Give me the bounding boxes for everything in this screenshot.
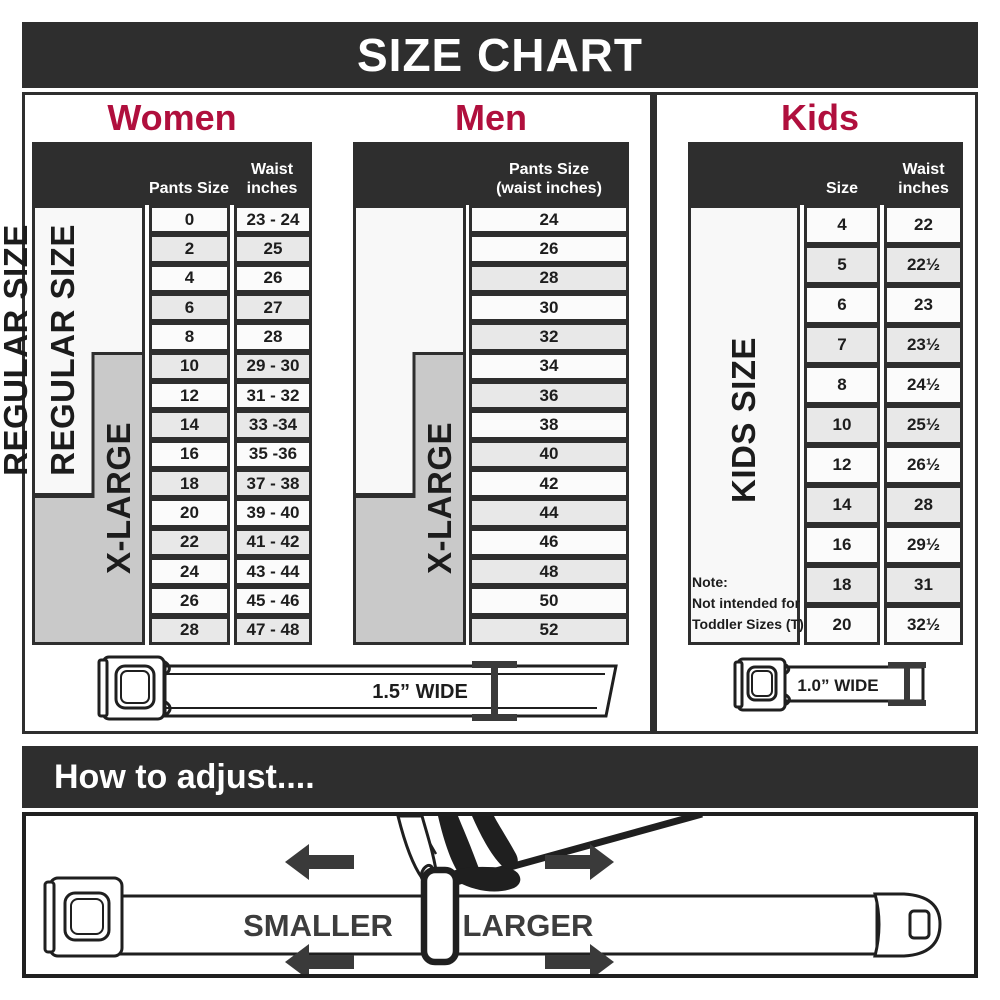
adult-buckle-edge: [99, 660, 107, 716]
kids-waist-cell: 29½: [884, 525, 963, 565]
kids-size-cell: 5: [804, 245, 880, 285]
men-pants-size-cell: 40: [469, 440, 629, 469]
size-chart-page: SIZE CHART Women Men Kids Pants Size Wai…: [0, 0, 1000, 1000]
kids-waist-cell: 28: [884, 485, 963, 525]
women-waist-cell: 33 -34: [234, 410, 312, 439]
women-pants-size-cell: 6: [149, 293, 230, 322]
how-to-adjust-title: How to adjust....: [54, 758, 315, 797]
women-waist-cell: 39 - 40: [234, 498, 312, 527]
kids-size-cell: 8: [804, 365, 880, 405]
women-pants-size-cell: 8: [149, 322, 230, 351]
men-pants-size-cell: 50: [469, 586, 629, 615]
men-pants-size-cell: 28: [469, 264, 629, 293]
women-pants-size-cell: 0: [149, 205, 230, 234]
page-title: SIZE CHART: [357, 28, 643, 82]
women-pants-size-header: Pants Size: [145, 179, 233, 198]
kids-size-cell: 6: [804, 285, 880, 325]
women-pants-size-cell: 2: [149, 234, 230, 263]
kids-belt-width-label: 1.0” WIDE: [797, 676, 878, 695]
belt-tip-slot: [910, 911, 929, 938]
men-title: Men: [391, 96, 591, 140]
kids-size-cell: 10: [804, 405, 880, 445]
women-title: Women: [72, 96, 272, 140]
kids-waist-header: Waist inches: [884, 160, 963, 198]
women-pants-size-cell: 10: [149, 352, 230, 381]
kids-size-cell: 12: [804, 445, 880, 485]
kids-size-column: 45678101214161820: [804, 205, 880, 645]
men-xlarge-label: X-LARGE: [419, 298, 461, 698]
kids-size-cell: 7: [804, 325, 880, 365]
women-pants-size-column: 0246810121416182022242628: [149, 205, 230, 645]
women-waist-cell: 26: [234, 264, 312, 293]
kids-size-cell: 16: [804, 525, 880, 565]
women-waist-cell: 45 - 46: [234, 586, 312, 615]
men-pants-size-cell: 38: [469, 410, 629, 439]
kids-size-cell: 14: [804, 485, 880, 525]
kids-size-header: Size: [804, 179, 880, 198]
women-waist-cell: 37 - 38: [234, 469, 312, 498]
women-pants-size-cell: 16: [149, 440, 230, 469]
women-pants-size-cell: 26: [149, 586, 230, 615]
women-waist-column: 23 - 242526272829 - 3031 - 3233 -3435 -3…: [234, 205, 312, 645]
women-xlarge-label: X-LARGE: [98, 298, 140, 698]
kids-waist-cell: 22: [884, 205, 963, 245]
men-pants-size-cell: 36: [469, 381, 629, 410]
section-divider: [650, 92, 657, 734]
men-pants-size-cell: 30: [469, 293, 629, 322]
kids-size-cell: 4: [804, 205, 880, 245]
belt-adjuster: [424, 870, 456, 962]
women-pants-size-cell: 18: [149, 469, 230, 498]
smaller-arrow-top: [285, 844, 354, 880]
women-pants-size-cell: 14: [149, 410, 230, 439]
kids-waist-cell: 26½: [884, 445, 963, 485]
women-waist-cell: 27: [234, 293, 312, 322]
kids-waist-cell: 22½: [884, 245, 963, 285]
men-pants-size-cell: 34: [469, 352, 629, 381]
kids-table-header: Size Waist inches: [688, 142, 963, 205]
women-pants-size-cell: 12: [149, 381, 230, 410]
women-pants-size-cell: 22: [149, 528, 230, 557]
men-pants-size-cell: 44: [469, 498, 629, 527]
women-waist-header: Waist inches: [232, 160, 312, 198]
kids-note: Note: Not intended for Toddler Sizes (T): [692, 572, 804, 635]
title-banner: SIZE CHART: [22, 22, 978, 88]
men-pants-size-cell: 48: [469, 557, 629, 586]
women-waist-cell: 23 - 24: [234, 205, 312, 234]
kids-waist-cell: 23: [884, 285, 963, 325]
men-pants-size-cell: 42: [469, 469, 629, 498]
how-to-adjust-banner: How to adjust....: [22, 746, 978, 808]
kids-waist-cell: 32½: [884, 605, 963, 645]
men-pants-size-cell: 26: [469, 234, 629, 263]
men-pants-size-header: Pants Size (waist inches): [469, 160, 629, 198]
women-pants-size-cell: 4: [149, 264, 230, 293]
smaller-label: SMALLER: [243, 908, 393, 943]
women-regular-size-label: REGULAR SIZE: [42, 150, 84, 550]
women-waist-cell: 25: [234, 234, 312, 263]
kids-size-cell: 18: [804, 565, 880, 605]
women-pants-size-cell: 24: [149, 557, 230, 586]
kids-size-cell: 20: [804, 605, 880, 645]
kids-buckle-edge: [735, 662, 742, 707]
kids-waist-cell: 31: [884, 565, 963, 605]
women-waist-cell: 35 -36: [234, 440, 312, 469]
men-regular-size-label: REGULAR SIZE: [0, 150, 37, 550]
adult-belt-width-label: 1.5” WIDE: [372, 681, 468, 703]
larger-label: LARGER: [463, 908, 594, 943]
adjust-illustration: SMALLER LARGER: [26, 816, 974, 974]
women-waist-cell: 31 - 32: [234, 381, 312, 410]
women-waist-cell: 43 - 44: [234, 557, 312, 586]
kids-waist-cell: 23½: [884, 325, 963, 365]
men-pants-size-column: 242628303234363840424446485052: [469, 205, 629, 645]
adult-belt-illustration: 1.5” WIDE: [95, 650, 635, 730]
women-waist-cell: 28: [234, 322, 312, 351]
women-pants-size-cell: 20: [149, 498, 230, 527]
adjust-buckle-edge: [45, 882, 54, 952]
kids-waist-column: 2222½2323½24½25½26½2829½3132½: [884, 205, 963, 645]
kids-waist-cell: 25½: [884, 405, 963, 445]
kids-size-side-label: KIDS SIZE: [723, 220, 765, 620]
kids-waist-cell: 24½: [884, 365, 963, 405]
men-pants-size-cell: 32: [469, 322, 629, 351]
men-pants-size-cell: 24: [469, 205, 629, 234]
women-waist-cell: 47 - 48: [234, 616, 312, 645]
men-table-header: Pants Size (waist inches): [353, 142, 629, 205]
kids-title: Kids: [720, 96, 920, 140]
men-pants-size-cell: 52: [469, 616, 629, 645]
kids-belt-illustration: 1.0” WIDE: [730, 653, 958, 715]
men-pants-size-cell: 46: [469, 528, 629, 557]
women-waist-cell: 29 - 30: [234, 352, 312, 381]
women-pants-size-cell: 28: [149, 616, 230, 645]
women-waist-cell: 41 - 42: [234, 528, 312, 557]
